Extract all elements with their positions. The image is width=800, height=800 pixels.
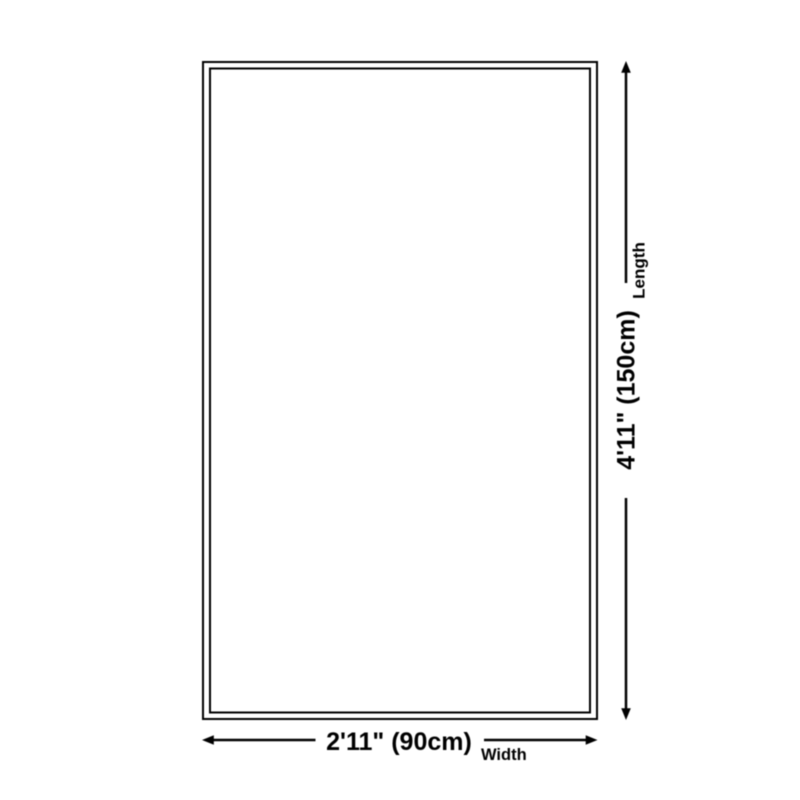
svg-text:Length: Length — [630, 242, 649, 299]
svg-text:4'11" (150cm): 4'11" (150cm) — [613, 310, 641, 470]
svg-text:2'11" (90cm): 2'11" (90cm) — [326, 728, 472, 756]
svg-text:Width: Width — [481, 746, 527, 764]
